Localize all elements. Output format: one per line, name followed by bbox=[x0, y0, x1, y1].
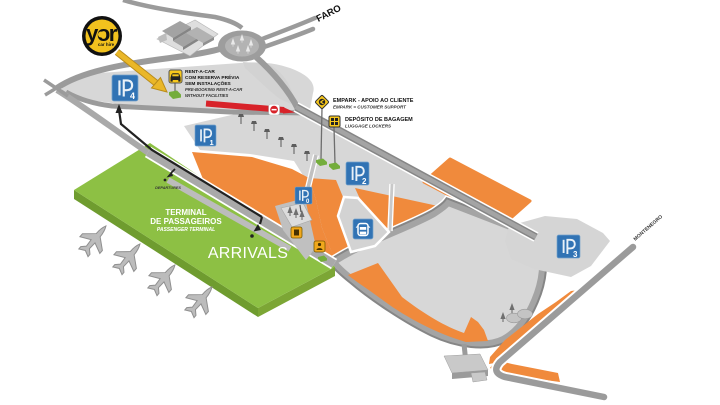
svg-text:WITHOUT FACILITIES: WITHOUT FACILITIES bbox=[185, 93, 228, 98]
svg-text:TERMINAL: TERMINAL bbox=[165, 208, 206, 217]
svg-text:car hire: car hire bbox=[98, 42, 115, 47]
svg-text:RENT-A-CAR: RENT-A-CAR bbox=[185, 69, 215, 75]
svg-text:PRE-BOOKING RENT-A-CAR: PRE-BOOKING RENT-A-CAR bbox=[185, 87, 242, 92]
svg-text:SEM INSTALAÇÕES: SEM INSTALAÇÕES bbox=[185, 80, 232, 87]
svg-text:EMPARK = CUSTOMER SUPPORT: EMPARK = CUSTOMER SUPPORT bbox=[333, 105, 407, 110]
svg-text:2: 2 bbox=[362, 177, 367, 186]
svg-text:4: 4 bbox=[130, 91, 135, 101]
svg-text:PASSENGER TERMINAL: PASSENGER TERMINAL bbox=[157, 227, 215, 233]
svg-text:ARRIVALS: ARRIVALS bbox=[208, 245, 288, 262]
svg-text:DEPARTURES: DEPARTURES bbox=[155, 186, 181, 190]
svg-text:3: 3 bbox=[573, 250, 578, 259]
svg-text:1: 1 bbox=[210, 138, 214, 147]
svg-text:DE PASSAGEIROS: DE PASSAGEIROS bbox=[150, 217, 222, 226]
svg-text:DEPÓSITO DE BAGAGEM: DEPÓSITO DE BAGAGEM bbox=[345, 115, 413, 123]
svg-text:LUGGAGE LOCKERS: LUGGAGE LOCKERS bbox=[345, 124, 391, 129]
svg-text:EMPARK - APOIO AO CLIENTE: EMPARK - APOIO AO CLIENTE bbox=[333, 98, 414, 104]
